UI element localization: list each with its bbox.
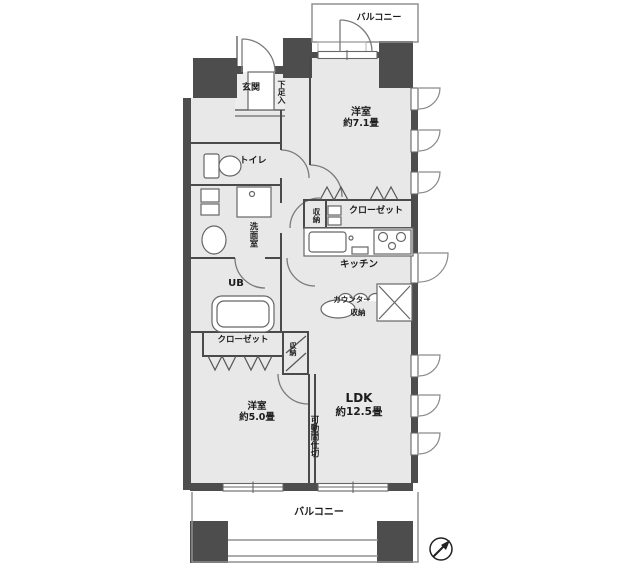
balcony-top-label: バルコニー xyxy=(347,13,411,23)
balcony-door-arc xyxy=(340,20,372,52)
kitchen-storage-label: 収納 xyxy=(307,202,320,228)
ldk-name: LDK xyxy=(327,392,391,406)
north-arrow-icon xyxy=(430,538,452,560)
closet-small-label: クローゼット xyxy=(205,336,281,346)
counter-storage-label-2: 収納 xyxy=(346,309,370,318)
room-7-1-size: 約7.1畳 xyxy=(331,119,391,130)
balcony-bottom-label: バルコニー xyxy=(284,507,354,519)
room-7-1-name: 洋室 xyxy=(331,107,391,119)
pillar-bottom-left xyxy=(190,521,228,563)
toilet-tank-icon xyxy=(204,154,219,178)
washroom-label: 洗面室 xyxy=(243,212,257,258)
kitchen-sink-icon xyxy=(309,232,346,252)
room-5-0-size: 約5.0畳 xyxy=(226,413,288,424)
toilet-label: トイレ xyxy=(236,156,270,166)
floor-plan-drawing xyxy=(0,0,640,569)
room-7-1-label: 洋室 約7.1畳 xyxy=(331,107,391,129)
window-arcs xyxy=(419,88,448,454)
unit-bath-label: UB xyxy=(222,278,250,290)
closet-main-label: クローゼット xyxy=(340,206,412,216)
sink-basin-icon xyxy=(202,226,226,254)
counter-storage-label-1: カウンター xyxy=(326,296,378,305)
entrance-label: 玄関 xyxy=(237,83,265,93)
pillar-bottom-right xyxy=(377,521,413,563)
pillar-top-left xyxy=(193,58,237,98)
room-5-0-label: 洋室 約5.0畳 xyxy=(226,402,288,424)
kitchen-label: キッチン xyxy=(328,260,390,271)
ldk-size: 約12.5畳 xyxy=(327,406,391,418)
floor-plan: バルコニー 玄関 下足入 洋室 約7.1畳 トイレ 洗面室 収納 クローゼット … xyxy=(0,0,640,569)
small-storage-label: 収納 xyxy=(284,334,296,364)
movable-partition-label: 可動間仕切 xyxy=(303,388,318,484)
entrance-door-arc xyxy=(242,39,275,72)
left-wall xyxy=(183,98,191,490)
ldk-label: LDK 約12.5畳 xyxy=(327,392,391,418)
shoe-cabinet-label: 下足入 xyxy=(272,73,285,111)
